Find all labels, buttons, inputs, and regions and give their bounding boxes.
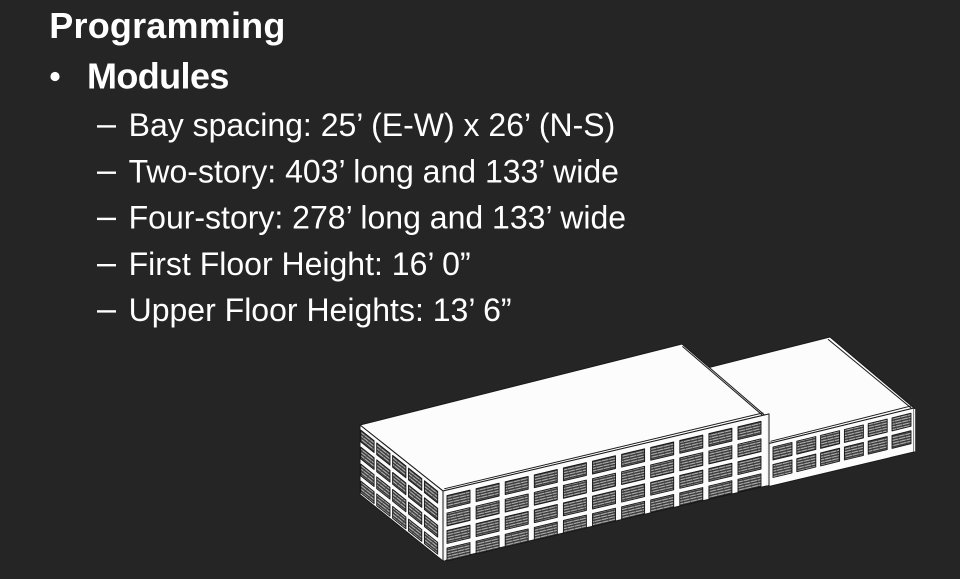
svg-text:Bay spacing: 25’ (E-W) x 26’ (: Bay spacing: 25’ (E-W) x 26’ (N-S) <box>129 107 616 143</box>
svg-text:Four-story: 278’ long and 133’: Four-story: 278’ long and 133’ wide <box>129 200 626 236</box>
svg-text:Programming: Programming <box>49 5 285 46</box>
svg-text:Modules: Modules <box>87 55 229 96</box>
svg-text:First Floor Height: 16’ 0”: First Floor Height: 16’ 0” <box>129 246 471 282</box>
svg-text:Upper Floor Heights: 13’ 6”: Upper Floor Heights: 13’ 6” <box>129 292 512 328</box>
svg-text:Two-story: 403’ long and 133’: Two-story: 403’ long and 133’ wide <box>129 153 619 189</box>
